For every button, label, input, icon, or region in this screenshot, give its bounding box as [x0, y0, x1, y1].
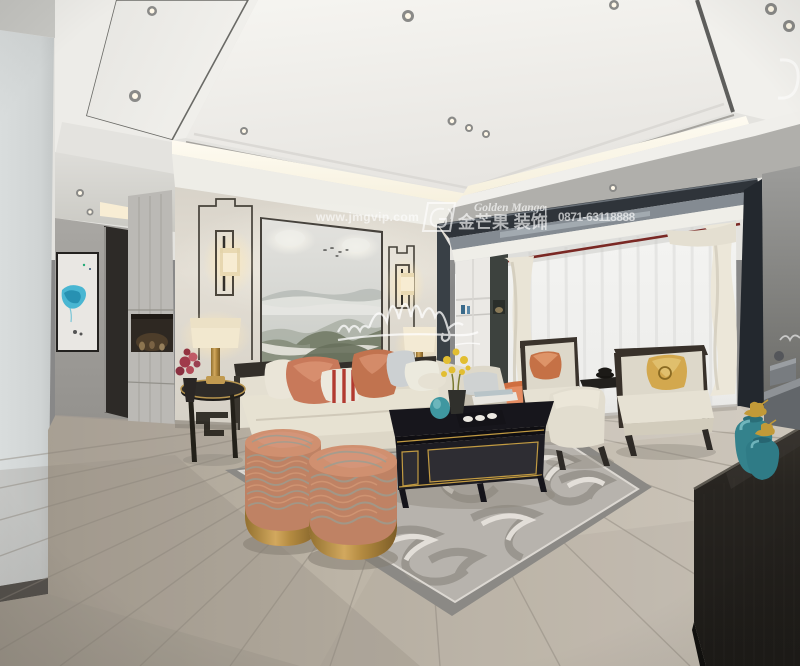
svg-text:金芒果 装饰: 金芒果 装饰 — [457, 212, 548, 232]
svg-text:www.jmgvip.com: www.jmgvip.com — [315, 210, 419, 224]
svg-text:0871-63118888: 0871-63118888 — [558, 210, 636, 224]
